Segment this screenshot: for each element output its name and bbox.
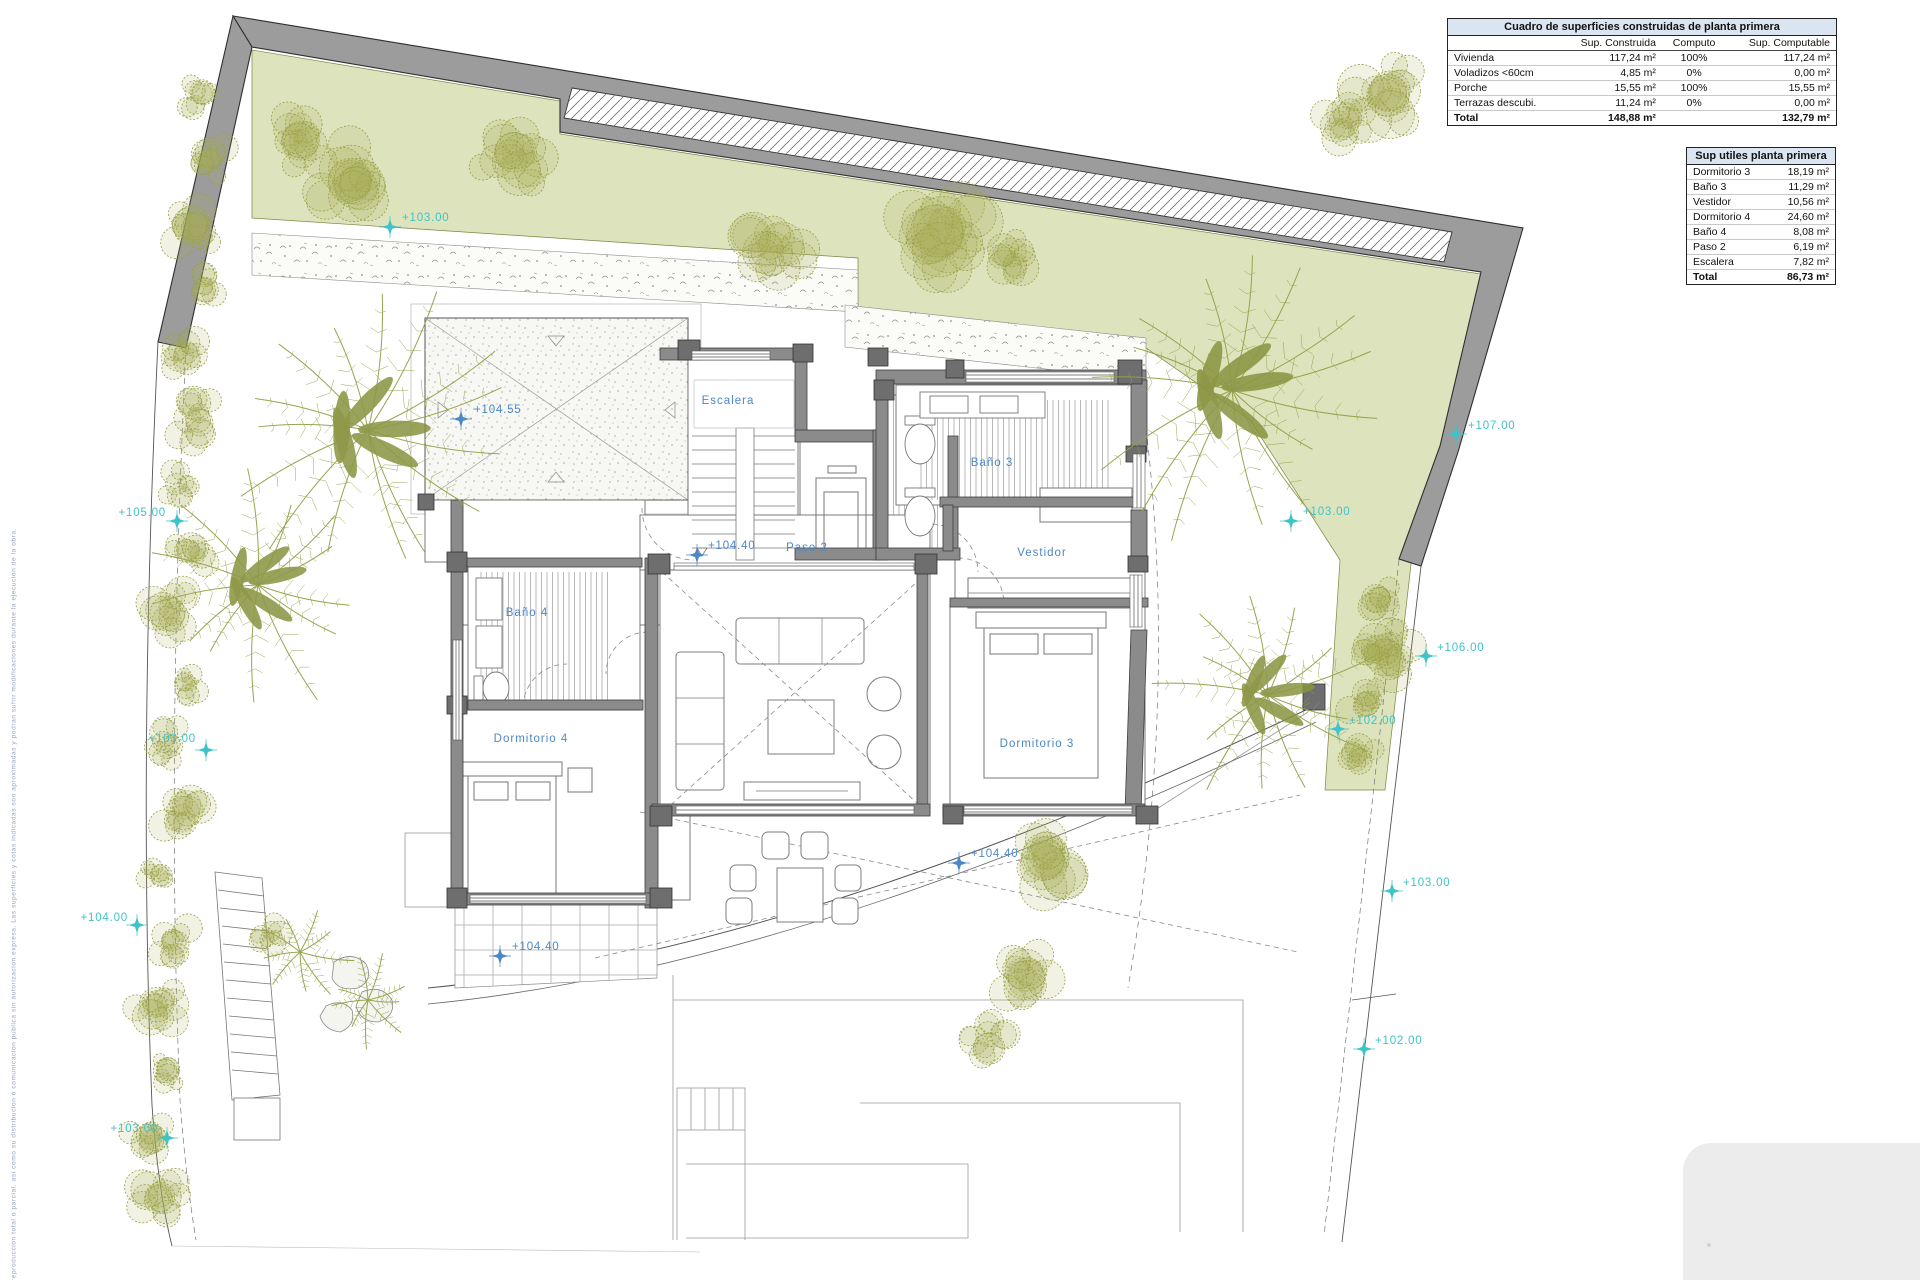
- bush: [959, 1009, 1020, 1068]
- built-surfaces-table-title: Cuadro de superficies construidas de pla…: [1448, 19, 1836, 36]
- table-row: Baño 48,08 m²: [1687, 225, 1835, 240]
- table-cell: 15,55 m²: [1559, 81, 1662, 96]
- room-label: Escalera: [702, 395, 755, 407]
- elevation-value: +103.00: [1403, 877, 1451, 889]
- bush: [136, 858, 173, 888]
- bush: [175, 664, 209, 706]
- table-cell: 10,56 m²: [1770, 195, 1835, 210]
- elevation-value: +103.00: [402, 212, 450, 224]
- elevation-value: +104.40: [512, 941, 560, 953]
- table-cell: 86,73 m²: [1770, 270, 1835, 285]
- table-cell: 11,29 m²: [1770, 180, 1835, 195]
- watermark-dot: [1707, 1243, 1711, 1247]
- table-cell: 0,00 m²: [1726, 96, 1836, 111]
- bush: [158, 460, 199, 507]
- table-cell: Porche: [1448, 81, 1559, 96]
- table-cell: 132,79 m²: [1726, 111, 1836, 126]
- floor-plan-svg: +103.00+107.00+105.00+106.00+102.00+103.…: [0, 0, 1920, 1280]
- elevation-value: +103.00: [149, 733, 197, 745]
- elevation-value: +104.40: [708, 540, 756, 552]
- usable-surfaces-table: Sup utiles planta primera Dormitorio 318…: [1686, 147, 1836, 285]
- table-cell: Voladizos <60cm: [1448, 66, 1559, 81]
- built-surfaces-table: Cuadro de superficies construidas de pla…: [1447, 18, 1837, 126]
- table-row: Voladizos <60cm4,85 m²0%0,00 m²: [1448, 66, 1836, 81]
- table-cell: 11,24 m²: [1559, 96, 1662, 111]
- table-cell: 100%: [1662, 81, 1726, 96]
- table-row: Porche15,55 m²100%15,55 m²: [1448, 81, 1836, 96]
- table-cell: Sup. Construida: [1559, 36, 1662, 51]
- bush: [1311, 92, 1372, 155]
- bush: [191, 262, 226, 306]
- elevation-marker: +104.00: [81, 912, 149, 936]
- elevation-marker: +103.00: [1381, 877, 1451, 902]
- table-cell: Sup. Computable: [1726, 36, 1836, 51]
- exterior-stair: [215, 872, 280, 1140]
- drawing-sheet: +103.00+107.00+105.00+106.00+102.00+103.…: [0, 0, 1920, 1280]
- table-cell: [1448, 36, 1559, 51]
- room-label: Baño 4: [506, 607, 548, 619]
- table-row: Dormitorio 424,60 m²: [1687, 210, 1835, 225]
- bush: [149, 914, 203, 968]
- watermark: [1683, 1143, 1920, 1280]
- table-cell: Total: [1687, 270, 1770, 285]
- table-cell: Dormitorio 3: [1687, 165, 1770, 180]
- table-cell: 117,24 m²: [1726, 51, 1836, 66]
- table-cell: Baño 4: [1687, 225, 1770, 240]
- table-cell: 0%: [1662, 96, 1726, 111]
- table-cell: Vivienda: [1448, 51, 1559, 66]
- bush: [1015, 819, 1088, 911]
- margin-disclaimer-text: Este documento es propiedad de su autor.…: [11, 300, 18, 1280]
- room-label: Dormitorio 3: [1000, 738, 1075, 750]
- elevation-value: +104.40: [971, 848, 1019, 860]
- table-cell: 8,08 m²: [1770, 225, 1835, 240]
- bathroom3-vanity: [920, 392, 1045, 418]
- table-cell: 0%: [1662, 66, 1726, 81]
- table-total-row: Total86,73 m²: [1687, 270, 1835, 285]
- elevation-marker: +105.00: [119, 507, 189, 532]
- table-cell: Total: [1448, 111, 1559, 126]
- table-total-row: Total148,88 m²132,79 m²: [1448, 111, 1836, 126]
- table-cell: 7,82 m²: [1770, 255, 1835, 270]
- elevation-value: +107.00: [1468, 420, 1516, 432]
- table-cell: Vestidor: [1687, 195, 1770, 210]
- table-cell: Baño 3: [1687, 180, 1770, 195]
- usable-surfaces-table-title: Sup utiles planta primera: [1687, 148, 1835, 165]
- room-label: Paso 2: [786, 542, 828, 554]
- elevation-value: +102.00: [1349, 715, 1397, 727]
- elevation-value: +102.00: [1375, 1035, 1423, 1047]
- table-cell: 0,00 m²: [1726, 66, 1836, 81]
- room-label: Baño 3: [971, 457, 1013, 469]
- table-row: Vestidor10,56 m²: [1687, 195, 1835, 210]
- bush: [165, 386, 222, 456]
- table-row: Escalera7,82 m²: [1687, 255, 1835, 270]
- bush: [165, 533, 219, 577]
- table-cell: 15,55 m²: [1726, 81, 1836, 96]
- roof-terrace: [411, 304, 701, 514]
- bush: [149, 785, 216, 841]
- table-cell: 4,85 m²: [1559, 66, 1662, 81]
- bush: [123, 979, 189, 1037]
- table-row: Terrazas descubi.11,24 m²0%0,00 m²: [1448, 96, 1836, 111]
- table-row: Dormitorio 318,19 m²: [1687, 165, 1835, 180]
- table-cell: 24,60 m²: [1770, 210, 1835, 225]
- elevation-value: +105.00: [119, 507, 167, 519]
- table-cell: 6,19 m²: [1770, 240, 1835, 255]
- elevation-value: +104.00: [81, 912, 129, 924]
- elevation-value: +104.55: [474, 404, 522, 416]
- dining-set: [726, 832, 861, 924]
- elevation-marker: +104.40: [948, 848, 1019, 874]
- table-cell: Dormitorio 4: [1687, 210, 1770, 225]
- table-cell: Escalera: [1687, 255, 1770, 270]
- room-label: Vestidor: [1017, 547, 1067, 559]
- table-cell: 148,88 m²: [1559, 111, 1662, 126]
- table-cell: 18,19 m²: [1770, 165, 1835, 180]
- elevation-value: +103.00: [1303, 506, 1351, 518]
- table-row: Vivienda117,24 m²100%117,24 m²: [1448, 51, 1836, 66]
- table-row: Baño 311,29 m²: [1687, 180, 1835, 195]
- bush: [125, 1168, 191, 1227]
- table-cell: [1662, 111, 1726, 126]
- table-row: Paso 26,19 m²: [1687, 240, 1835, 255]
- room-label: Dormitorio 4: [494, 733, 569, 745]
- table-cell: Computo: [1662, 36, 1726, 51]
- table-header-row: Sup. ConstruidaComputoSup. Computable: [1448, 36, 1836, 51]
- elevation-value: +103.00: [111, 1123, 159, 1135]
- table-cell: Paso 2: [1687, 240, 1770, 255]
- table-cell: 100%: [1662, 51, 1726, 66]
- bed-dormitorio3: [976, 612, 1106, 778]
- table-cell: 117,24 m²: [1559, 51, 1662, 66]
- bush: [161, 194, 221, 259]
- elevation-value: +106.00: [1437, 642, 1485, 654]
- bush: [136, 576, 200, 648]
- table-cell: Terrazas descubi.: [1448, 96, 1559, 111]
